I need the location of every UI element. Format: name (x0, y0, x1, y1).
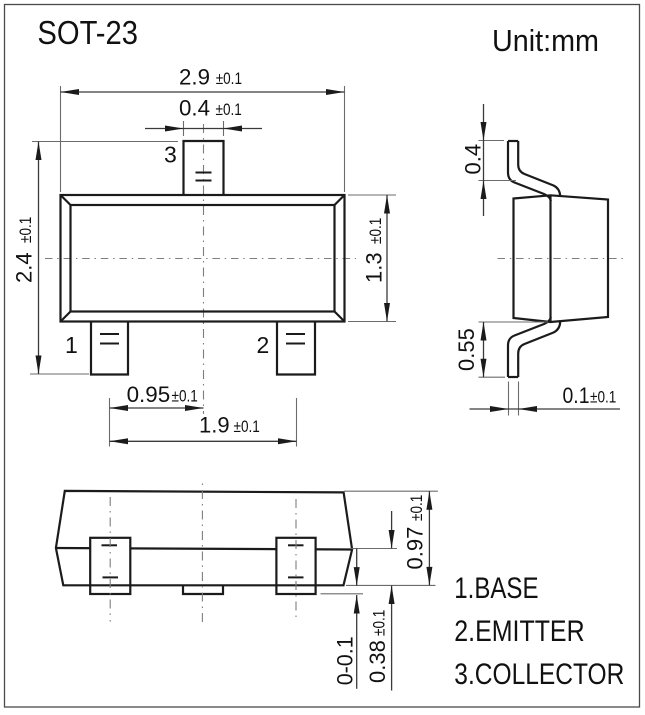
svg-text:±0.1: ±0.1 (366, 218, 385, 244)
svg-text:1.3: 1.3 (361, 252, 386, 283)
svg-text:±0.1: ±0.1 (370, 610, 389, 636)
svg-text:0.1: 0.1 (563, 383, 590, 408)
svg-text:±0.1: ±0.1 (590, 388, 616, 407)
svg-text:0.55: 0.55 (454, 328, 479, 371)
svg-text:2: 2 (257, 332, 270, 358)
svg-text:3.COLLECTOR: 3.COLLECTOR (454, 658, 624, 691)
svg-text:0.38: 0.38 (365, 640, 390, 683)
svg-text:SOT-23: SOT-23 (37, 14, 138, 51)
svg-text:±0.1: ±0.1 (216, 69, 242, 88)
svg-text:1.BASE: 1.BASE (454, 572, 538, 605)
svg-text:3: 3 (164, 142, 177, 168)
svg-text:0.97: 0.97 (403, 527, 428, 570)
svg-text:Unit:mm: Unit:mm (492, 23, 599, 58)
svg-text:±0.1: ±0.1 (216, 100, 242, 119)
svg-text:±0.1: ±0.1 (407, 495, 426, 521)
svg-text:±0.1: ±0.1 (234, 417, 260, 436)
svg-text:1.9: 1.9 (199, 413, 230, 438)
svg-text:2.EMITTER: 2.EMITTER (454, 615, 584, 648)
svg-text:0-0.1: 0-0.1 (332, 636, 357, 685)
svg-text:2.9: 2.9 (179, 65, 210, 90)
svg-text:0.95: 0.95 (127, 382, 171, 407)
svg-text:0.4: 0.4 (461, 144, 486, 175)
svg-text:2.4: 2.4 (12, 252, 37, 283)
svg-text:±0.1: ±0.1 (16, 217, 35, 243)
svg-text:±0.1: ±0.1 (172, 387, 198, 406)
svg-text:1: 1 (65, 332, 78, 358)
svg-text:0.4: 0.4 (179, 96, 210, 121)
